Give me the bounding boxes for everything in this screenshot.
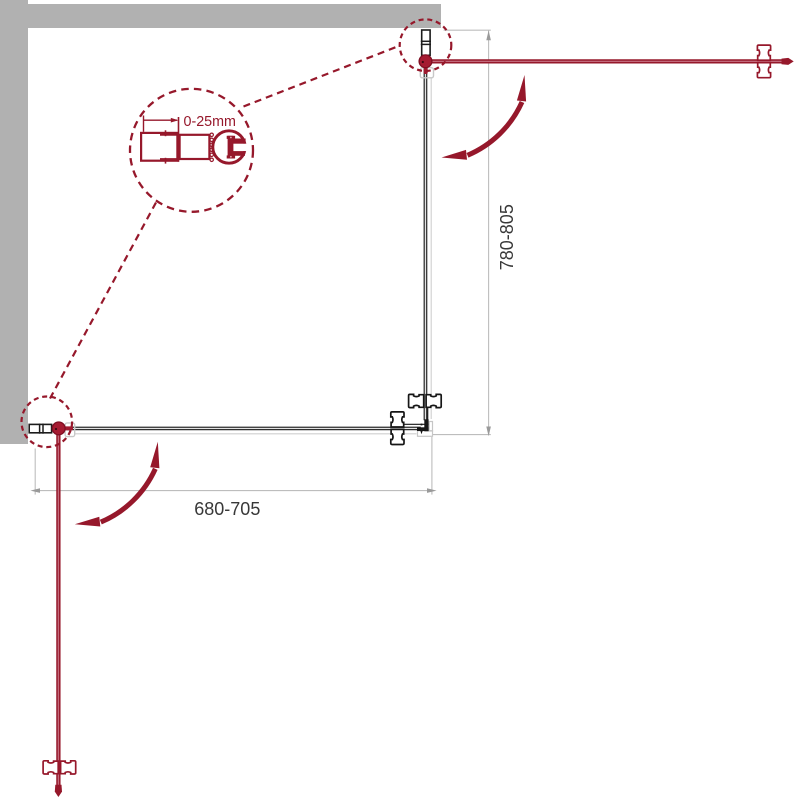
svg-text:780-805: 780-805 [497, 204, 517, 270]
svg-text:0-25mm: 0-25mm [184, 114, 236, 130]
svg-text:680-705: 680-705 [194, 499, 260, 519]
